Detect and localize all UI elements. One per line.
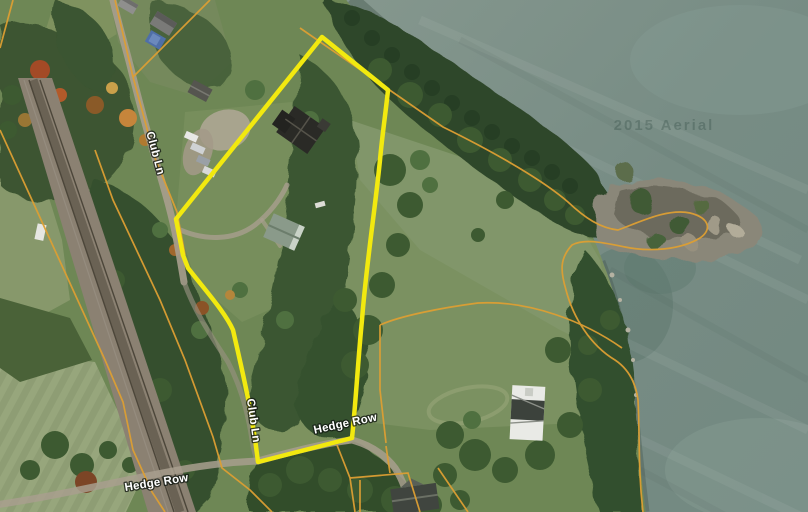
white-house-southeast [510, 385, 546, 441]
aerial-parcel-map[interactable]: Club Ln Club Ln Hedge Row Hedge Row 2015… [0, 0, 808, 512]
imagery-watermark: 2015 Aerial [614, 117, 715, 134]
map-canvas[interactable]: Club Ln Club Ln Hedge Row Hedge Row 2015… [0, 0, 808, 512]
